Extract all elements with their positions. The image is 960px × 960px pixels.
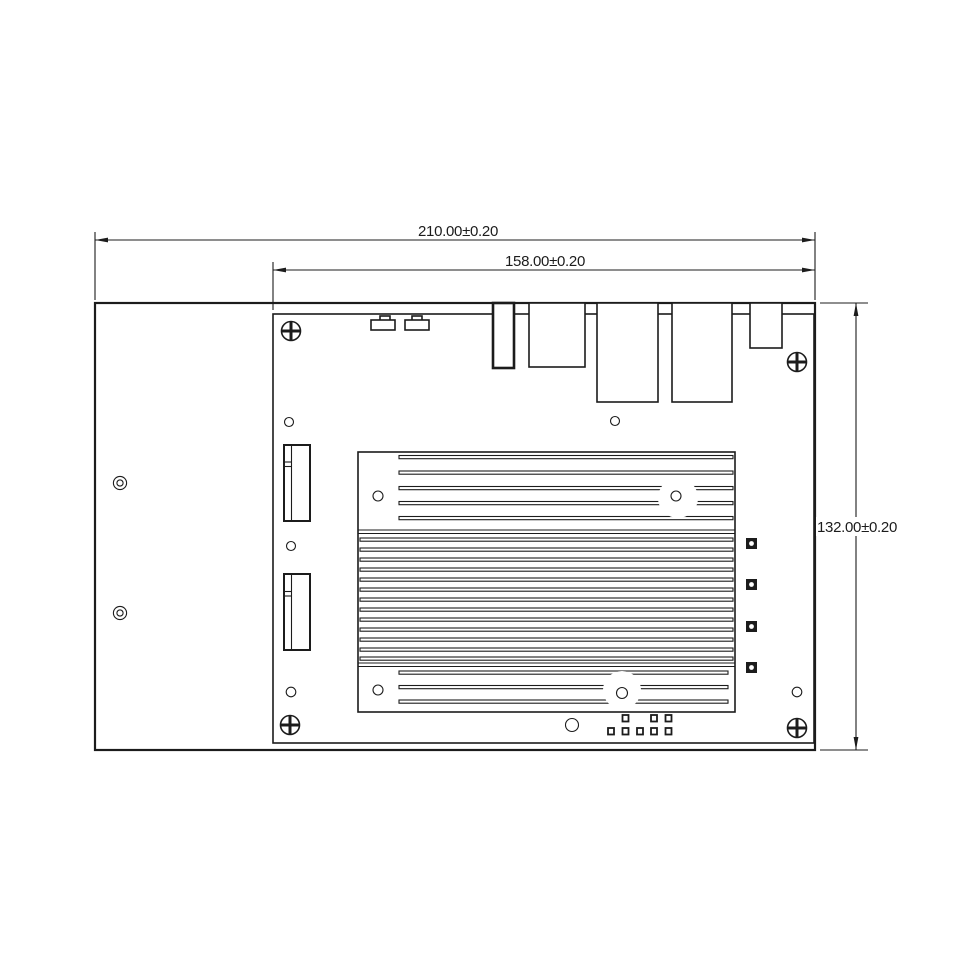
arrow-down-icon	[854, 737, 859, 750]
card-edge-connector-1	[284, 445, 310, 521]
arrow-left-icon	[95, 238, 108, 243]
arrow-right-icon	[802, 268, 815, 273]
standoff-icon	[746, 538, 757, 549]
standoff-icon	[746, 579, 757, 590]
arrow-up-icon	[854, 303, 859, 316]
drawing-canvas: 210.00±0.20 158.00±0.20	[0, 0, 960, 960]
plate-mounting-hole-top	[113, 476, 126, 489]
dimension-board-width: 158.00±0.20	[273, 253, 815, 310]
standoff-icon	[746, 621, 757, 632]
card-edge-connector-2	[284, 574, 310, 650]
arrow-left-icon	[273, 268, 286, 273]
connector-port-5	[750, 303, 782, 348]
arrow-right-icon	[802, 238, 815, 243]
dimension-overall-height-label: 132.00±0.20	[817, 519, 897, 536]
dimension-overall-height: 132.00±0.20	[816, 303, 897, 750]
connector-port-2	[529, 303, 585, 367]
plate-mounting-hole-bottom	[113, 606, 126, 619]
phillips-screw-icon	[788, 719, 807, 738]
standoff-icon	[746, 662, 757, 673]
dimension-overall-width-label: 210.00±0.20	[418, 223, 498, 240]
connector-port-1	[493, 303, 514, 368]
connector-port-3	[597, 303, 658, 402]
connector-port-4	[672, 303, 732, 402]
dimension-overall-width: 210.00±0.20	[95, 223, 815, 300]
phillips-screw-icon	[282, 322, 301, 341]
phillips-screw-icon	[788, 353, 807, 372]
mechanical-drawing-svg: 210.00±0.20 158.00±0.20	[0, 0, 960, 960]
heatsink	[358, 452, 735, 712]
dimension-board-width-label: 158.00±0.20	[505, 253, 585, 270]
phillips-screw-icon	[281, 716, 300, 735]
